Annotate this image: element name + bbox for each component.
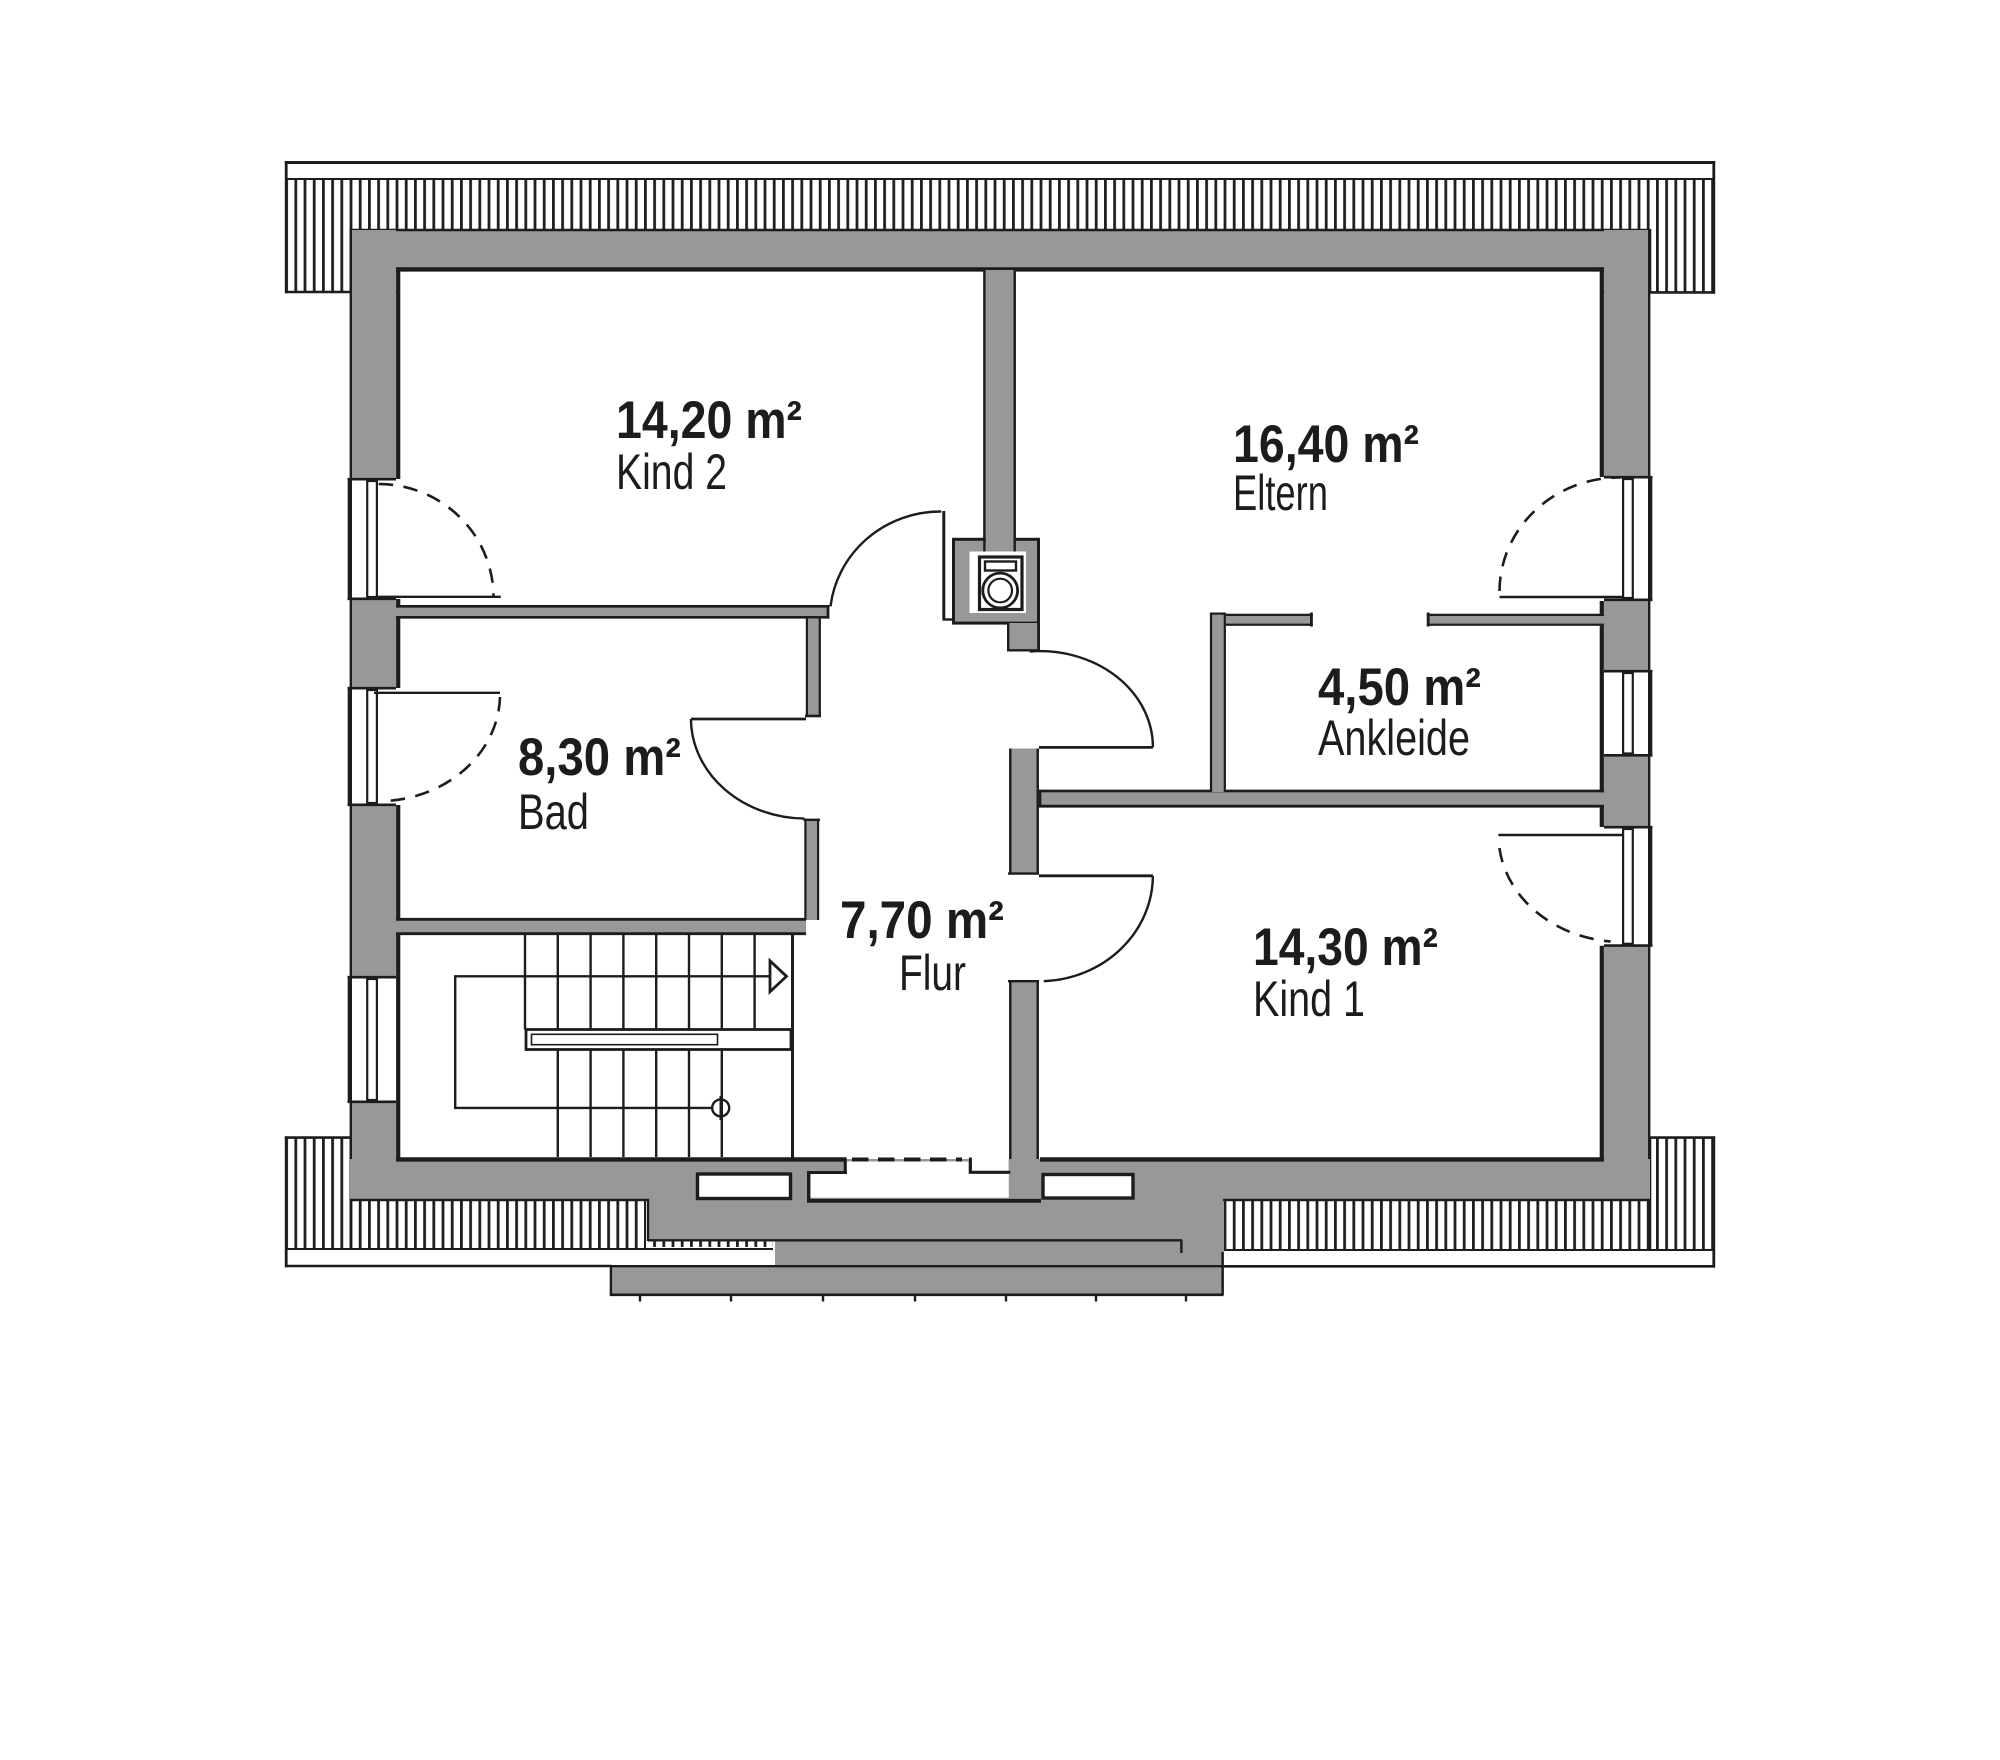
svg-text:Ankleide: Ankleide — [1318, 710, 1470, 766]
svg-text:4,50 m²: 4,50 m² — [1318, 658, 1481, 717]
svg-text:14,20 m²: 14,20 m² — [616, 391, 802, 450]
svg-text:Kind 2: Kind 2 — [616, 444, 727, 500]
svg-text:Eltern: Eltern — [1233, 465, 1328, 521]
svg-text:Flur: Flur — [899, 945, 966, 1001]
svg-text:Bad: Bad — [518, 784, 589, 840]
svg-text:Kind 1: Kind 1 — [1253, 971, 1365, 1027]
svg-text:14,30 m²: 14,30 m² — [1253, 918, 1438, 977]
svg-text:7,70 m²: 7,70 m² — [840, 891, 1004, 950]
svg-text:8,30 m²: 8,30 m² — [518, 728, 681, 787]
